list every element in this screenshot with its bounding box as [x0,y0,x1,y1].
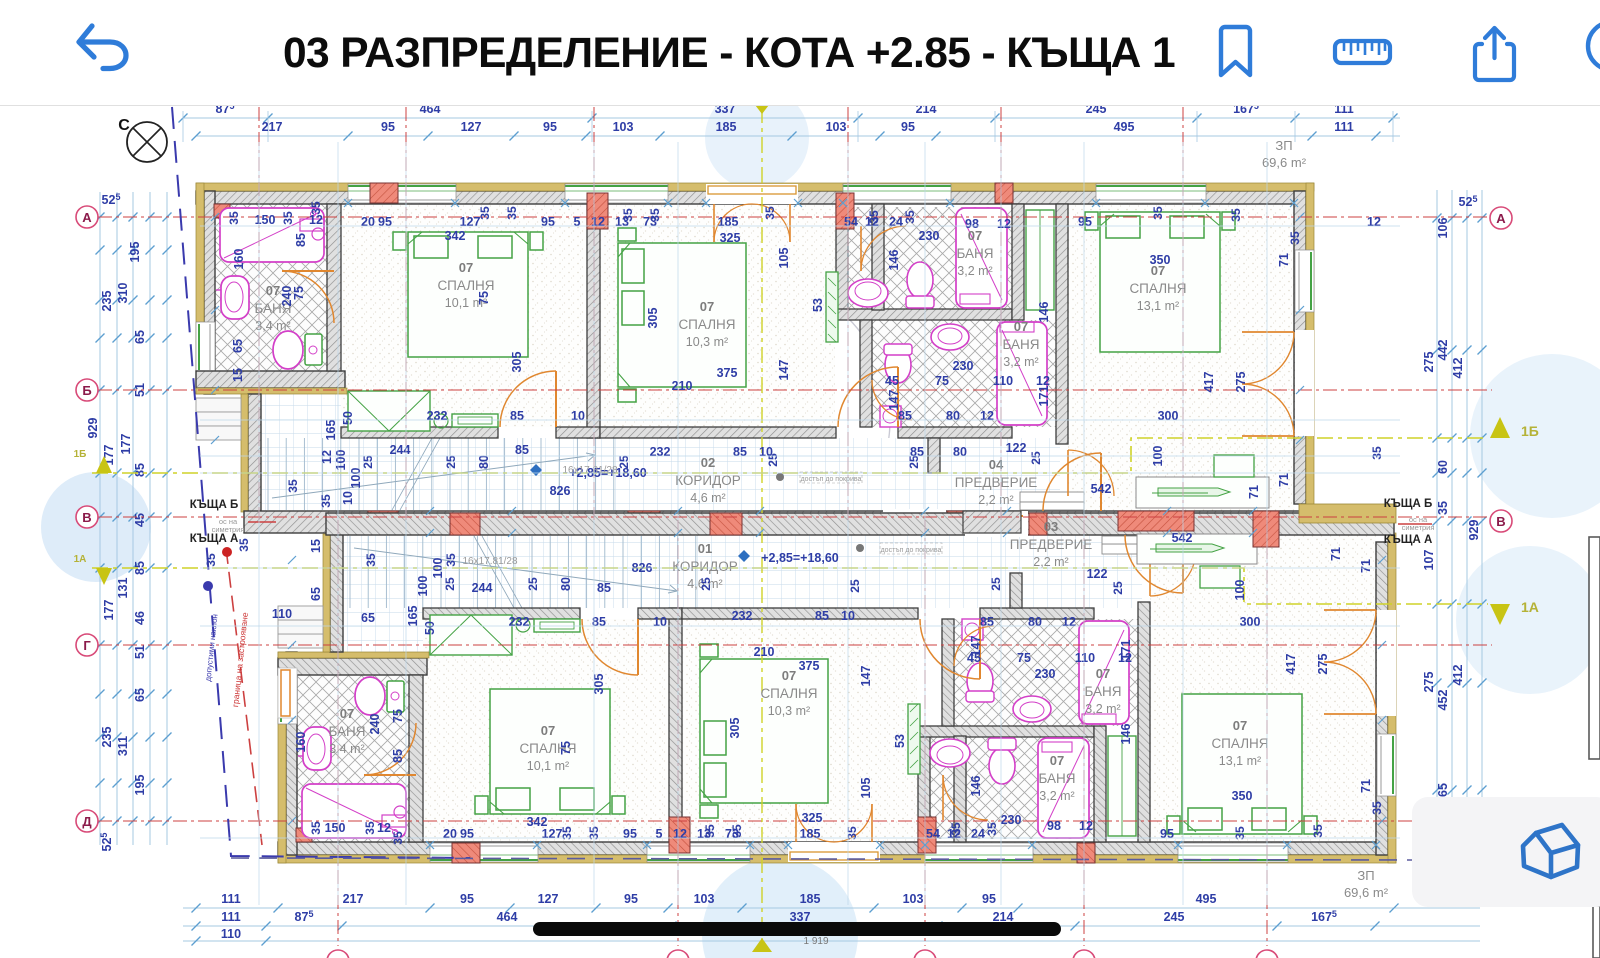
svg-text:12: 12 [980,409,994,423]
svg-text:103: 103 [694,892,715,906]
svg-text:103: 103 [903,892,924,906]
svg-text:В: В [1496,514,1505,529]
svg-text:СПАЛНЯ: СПАЛНЯ [1129,281,1186,296]
svg-text:217: 217 [343,892,364,906]
svg-text:12: 12 [591,215,605,229]
svg-text:185: 185 [716,120,737,134]
svg-text:127: 127 [461,120,482,134]
svg-text:110: 110 [1075,651,1095,665]
svg-text:85: 85 [515,443,529,457]
svg-text:КЪЩА Б: КЪЩА Б [190,499,239,511]
svg-text:С: С [118,117,130,134]
svg-text:25: 25 [1029,451,1043,465]
svg-text:35: 35 [730,824,744,838]
svg-text:12: 12 [320,450,334,464]
svg-text:35: 35 [648,208,662,222]
svg-text:07: 07 [1233,718,1247,733]
svg-text:13,1 m²: 13,1 m² [1137,299,1179,313]
svg-text:107: 107 [1422,550,1436,571]
svg-text:01: 01 [698,541,712,556]
svg-text:542: 542 [1091,482,1112,496]
svg-text:244: 244 [472,581,493,595]
svg-text:171: 171 [1037,386,1051,407]
svg-text:214: 214 [993,910,1014,924]
svg-text:80: 80 [1028,615,1042,629]
svg-text:53: 53 [893,734,907,748]
svg-text:35: 35 [309,201,323,215]
svg-text:122: 122 [1006,441,1027,455]
svg-text:+2,85=+18,60: +2,85=+18,60 [761,551,839,565]
svg-text:1А: 1А [74,554,87,565]
svg-text:10,3 m²: 10,3 m² [686,335,728,349]
svg-text:75: 75 [1017,651,1031,665]
svg-text:35: 35 [237,538,251,552]
svg-text:85: 85 [980,615,994,629]
svg-text:БАНЯ: БАНЯ [1084,684,1121,699]
svg-text:98: 98 [965,217,979,231]
svg-text:210: 210 [754,645,775,659]
svg-text:110: 110 [272,607,292,621]
svg-text:100: 100 [349,468,363,489]
svg-text:75: 75 [477,291,491,305]
svg-text:1Б: 1Б [74,449,87,460]
svg-text:35: 35 [505,206,519,220]
svg-text:80: 80 [946,409,960,423]
svg-text:442: 442 [1436,340,1450,361]
svg-text:177: 177 [102,600,116,621]
svg-text:165: 165 [324,420,338,441]
svg-text:310: 310 [116,283,130,304]
svg-text:275: 275 [1422,672,1436,693]
svg-text:15: 15 [231,368,245,382]
svg-text:1 919: 1 919 [803,936,828,947]
svg-text:03 РАЗПРЕДЕЛЕНИЕ - КОТА +2.85: 03 РАЗПРЕДЕЛЕНИЕ - КОТА +2.85 - КЪЩА 1 [283,30,1175,77]
svg-text:20: 20 [443,827,457,841]
svg-text:35: 35 [364,553,378,567]
svg-text:07: 07 [266,283,280,298]
svg-text:07: 07 [340,706,354,721]
svg-text:25: 25 [444,455,458,469]
svg-text:25: 25 [1111,581,1125,595]
svg-text:25: 25 [443,577,457,591]
svg-text:12: 12 [1079,819,1093,833]
svg-text:10,3 m²: 10,3 m² [768,704,810,718]
svg-text:07: 07 [541,723,555,738]
svg-text:65: 65 [133,330,147,344]
svg-text:07: 07 [459,260,473,275]
svg-text:25: 25 [766,453,780,467]
svg-text:12: 12 [377,821,391,835]
svg-text:35: 35 [204,553,218,567]
svg-text:БАНЯ: БАНЯ [1002,337,1039,352]
svg-text:13,1 m²: 13,1 m² [1219,754,1261,768]
svg-text:85: 85 [391,749,405,763]
svg-text:95: 95 [1160,827,1174,841]
svg-text:195: 195 [128,242,142,263]
svg-text:305: 305 [646,308,660,329]
svg-text:232: 232 [509,615,530,629]
svg-text:24: 24 [971,827,985,841]
svg-text:71: 71 [1329,547,1343,561]
svg-text:150: 150 [325,821,346,835]
svg-text:35: 35 [845,826,859,840]
svg-text:147: 147 [777,360,791,381]
svg-text:35: 35 [949,822,963,836]
svg-text:100: 100 [334,450,348,471]
svg-text:80: 80 [477,455,491,469]
svg-text:35: 35 [478,206,492,220]
svg-text:95: 95 [543,120,557,134]
svg-text:35: 35 [867,210,881,224]
svg-text:45: 45 [133,513,147,527]
svg-text:342: 342 [527,815,548,829]
svg-text:10: 10 [653,615,667,629]
svg-text:35: 35 [763,206,777,220]
svg-text:65: 65 [133,688,147,702]
svg-text:20: 20 [361,215,375,229]
svg-text:495: 495 [1114,120,1135,134]
svg-text:25: 25 [848,579,862,593]
svg-text:35: 35 [286,479,300,493]
svg-text:412: 412 [1451,358,1465,379]
svg-text:98: 98 [1047,819,1061,833]
svg-text:230: 230 [953,359,974,373]
svg-text:35: 35 [309,821,323,835]
svg-text:35: 35 [1288,231,1302,245]
svg-text:53: 53 [811,298,825,312]
svg-text:71: 71 [1359,559,1373,573]
svg-text:4,6 m²: 4,6 m² [690,491,725,505]
svg-text:ПРЕДВЕРИЕ: ПРЕДВЕРИЕ [1010,537,1093,552]
svg-text:452: 452 [1436,690,1450,711]
svg-text:1Б: 1Б [1521,423,1539,439]
svg-text:65: 65 [361,611,375,625]
svg-text:75: 75 [391,709,405,723]
svg-text:71: 71 [1359,779,1373,793]
svg-text:35: 35 [1370,801,1384,815]
svg-text:35: 35 [1229,208,1243,222]
svg-text:71: 71 [1277,473,1291,487]
svg-text:03: 03 [1044,519,1058,534]
svg-text:35: 35 [363,821,377,835]
svg-text:305: 305 [510,352,524,373]
svg-text:311: 311 [116,736,130,756]
svg-text:35: 35 [1233,826,1247,840]
svg-text:12: 12 [1062,615,1076,629]
svg-text:275: 275 [1234,372,1248,393]
svg-text:230: 230 [919,229,940,243]
svg-text:2,2 m²: 2,2 m² [978,493,1013,507]
svg-text:105: 105 [859,778,873,799]
svg-text:95: 95 [460,827,474,841]
svg-text:БАНЯ: БАНЯ [956,246,993,261]
svg-text:195: 195 [133,775,147,796]
svg-text:А: А [82,210,92,225]
svg-text:235: 235 [100,291,114,312]
svg-text:185: 185 [800,892,821,906]
svg-text:375: 375 [717,366,738,380]
svg-text:325: 325 [802,811,823,825]
svg-text:337: 337 [790,910,811,924]
svg-text:85: 85 [815,609,829,623]
svg-text:35: 35 [1311,824,1325,838]
svg-text:95: 95 [624,892,638,906]
svg-text:35: 35 [703,824,717,838]
svg-text:25: 25 [907,455,921,469]
svg-text:БАНЯ: БАНЯ [1038,771,1075,786]
svg-text:542: 542 [1172,531,1193,545]
svg-text:65: 65 [309,587,323,601]
svg-text:929: 929 [86,418,100,439]
svg-text:25: 25 [361,455,375,469]
svg-text:04: 04 [989,457,1004,472]
svg-text:65: 65 [1436,783,1450,797]
svg-text:95: 95 [378,215,392,229]
svg-text:35: 35 [621,208,635,222]
svg-text:КОРИДОР: КОРИДОР [675,473,741,488]
svg-text:3,2 m²: 3,2 m² [1085,702,1120,716]
svg-text:СПАЛНЯ: СПАЛНЯ [678,317,735,332]
svg-text:147: 147 [859,666,873,687]
svg-text:25: 25 [699,577,713,591]
svg-text:325: 325 [720,231,741,245]
svg-text:122: 122 [1087,567,1108,581]
svg-text:375: 375 [799,659,820,673]
svg-text:5: 5 [656,827,663,841]
svg-text:75: 75 [559,741,573,755]
svg-text:95: 95 [623,827,637,841]
svg-text:07: 07 [1096,666,1110,681]
svg-text:100: 100 [416,576,430,597]
svg-text:10: 10 [341,491,355,505]
svg-text:350: 350 [1232,789,1253,803]
svg-text:46: 46 [133,611,147,625]
svg-text:50: 50 [341,411,355,425]
svg-text:А: А [1496,211,1506,226]
svg-text:95: 95 [460,892,474,906]
svg-text:02: 02 [701,455,715,470]
svg-text:495: 495 [1196,892,1217,906]
svg-text:95: 95 [381,120,395,134]
svg-text:35: 35 [444,553,458,567]
svg-text:85: 85 [733,445,747,459]
svg-text:75: 75 [935,374,949,388]
svg-text:235: 235 [100,727,114,748]
svg-text:217: 217 [262,120,283,134]
svg-text:110: 110 [221,927,241,941]
svg-text:127: 127 [538,892,559,906]
svg-text:51: 51 [133,645,147,659]
svg-text:12: 12 [997,217,1011,231]
svg-text:111: 111 [221,892,241,906]
svg-text:16x17.81/28: 16x17.81/28 [562,465,617,476]
svg-text:230: 230 [1001,813,1022,827]
svg-text:95: 95 [901,120,915,134]
svg-text:БАНЯ: БАНЯ [328,724,365,739]
svg-text:10: 10 [571,409,585,423]
svg-text:1А: 1А [1521,599,1539,615]
svg-text:147: 147 [887,390,901,411]
svg-text:100: 100 [1233,580,1247,601]
svg-text:85: 85 [597,581,611,595]
svg-text:07: 07 [1050,753,1064,768]
svg-text:417: 417 [1202,372,1216,393]
svg-text:160: 160 [232,249,246,270]
svg-text:3,2 m²: 3,2 m² [1039,789,1074,803]
svg-text:80: 80 [953,445,967,459]
svg-text:103: 103 [826,120,847,134]
svg-text:ЗП: ЗП [1275,138,1292,153]
svg-text:35: 35 [1436,501,1450,515]
svg-text:232: 232 [650,445,671,459]
svg-text:929: 929 [1467,520,1481,541]
svg-text:2,2 m²: 2,2 m² [1033,555,1068,569]
svg-text:85: 85 [133,463,147,477]
svg-text:45: 45 [885,374,899,388]
svg-text:150: 150 [255,213,276,227]
svg-text:69,6 m²: 69,6 m² [1262,155,1307,170]
svg-text:146: 146 [887,250,901,271]
svg-text:КОРИДОР: КОРИДОР [672,559,738,574]
svg-text:35: 35 [985,822,999,836]
svg-text:3,4 m²: 3,4 m² [255,319,290,333]
svg-text:54: 54 [926,827,940,841]
svg-text:147: 147 [969,636,983,657]
svg-text:300: 300 [1240,615,1261,629]
svg-text:826: 826 [550,484,571,498]
svg-text:230: 230 [1035,667,1056,681]
svg-text:35: 35 [903,210,917,224]
svg-text:достъп до покрива: достъп до покрива [801,476,862,483]
svg-text:35: 35 [1370,446,1384,460]
svg-text:95: 95 [982,892,996,906]
svg-text:5: 5 [574,215,581,229]
svg-text:71: 71 [1247,485,1261,499]
svg-text:232: 232 [427,409,448,423]
svg-text:07: 07 [1014,319,1028,334]
svg-text:07: 07 [700,299,714,314]
svg-text:ЗП: ЗП [1357,868,1374,883]
svg-text:35: 35 [227,211,241,225]
svg-text:16x17.81/28: 16x17.81/28 [462,556,517,567]
svg-text:симетрия: симетрия [212,525,245,534]
svg-text:35: 35 [560,826,574,840]
svg-text:СПАЛНЯ: СПАЛНЯ [760,686,817,701]
svg-text:240: 240 [368,714,382,735]
svg-text:65: 65 [231,339,245,353]
svg-text:85: 85 [294,233,308,247]
svg-text:103: 103 [613,120,634,134]
svg-text:275: 275 [1316,654,1330,675]
svg-text:146: 146 [969,776,983,797]
svg-text:10,1 m²: 10,1 m² [527,759,569,773]
svg-text:В: В [82,510,91,525]
svg-text:146: 146 [1119,724,1133,745]
svg-text:3,2 m²: 3,2 m² [957,264,992,278]
svg-text:417: 417 [1284,654,1298,675]
svg-text:275: 275 [1422,352,1436,373]
svg-text:210: 210 [672,379,693,393]
svg-text:95: 95 [541,215,555,229]
svg-text:464: 464 [497,910,518,924]
svg-text:245: 245 [1164,910,1185,924]
svg-text:50: 50 [423,621,437,635]
svg-text:3,2 m²: 3,2 m² [1003,355,1038,369]
svg-text:3,4 m²: 3,4 m² [329,742,364,756]
svg-text:Б: Б [82,383,91,398]
svg-text:15: 15 [309,539,323,553]
svg-text:350: 350 [1150,253,1171,267]
svg-text:111: 111 [221,910,241,924]
svg-text:75: 75 [292,286,306,300]
svg-text:достъп до покрива: достъп до покрива [881,547,942,554]
svg-text:160: 160 [294,732,308,753]
svg-text:КЪЩА А: КЪЩА А [190,533,239,545]
svg-text:165: 165 [406,606,420,627]
svg-text:244: 244 [390,443,411,457]
svg-text:171: 171 [1119,640,1133,661]
svg-text:111: 111 [1334,120,1354,134]
svg-text:300: 300 [1158,409,1179,423]
svg-text:85: 85 [510,409,524,423]
svg-text:54: 54 [844,215,858,229]
svg-text:131: 131 [116,578,130,599]
svg-text:342: 342 [445,229,466,243]
svg-text:07: 07 [782,668,796,683]
svg-text:146: 146 [1037,302,1051,323]
svg-text:25: 25 [526,577,540,591]
svg-text:35: 35 [1151,206,1165,220]
svg-text:106: 106 [1436,218,1450,239]
svg-text:80: 80 [559,577,573,591]
svg-text:Г: Г [83,638,91,653]
svg-text:12: 12 [673,827,687,841]
svg-text:110: 110 [993,374,1013,388]
svg-text:69,6 m²: 69,6 m² [1344,885,1389,900]
svg-text:95: 95 [1078,215,1092,229]
svg-text:КЪЩА Б: КЪЩА Б [1384,498,1433,510]
svg-text:412: 412 [1451,665,1465,686]
svg-text:185: 185 [800,827,821,841]
svg-text:305: 305 [728,718,742,739]
svg-text:ПРЕДВЕРИЕ: ПРЕДВЕРИЕ [955,475,1038,490]
svg-text:105: 105 [777,248,791,269]
svg-text:КЪЩА А: КЪЩА А [1384,534,1433,546]
svg-text:35: 35 [319,494,333,508]
svg-text:СПАЛНЯ: СПАЛНЯ [437,278,494,293]
svg-text:Д: Д [82,814,92,829]
svg-text:232: 232 [732,609,753,623]
svg-text:71: 71 [1277,253,1291,267]
svg-text:35: 35 [281,211,295,225]
svg-text:185: 185 [718,215,739,229]
svg-text:60: 60 [1436,460,1450,474]
svg-text:24: 24 [889,215,903,229]
svg-text:25: 25 [617,455,631,469]
svg-text:12: 12 [1367,215,1381,229]
svg-text:177: 177 [119,434,133,455]
svg-text:СПАЛНЯ: СПАЛНЯ [1211,736,1268,751]
